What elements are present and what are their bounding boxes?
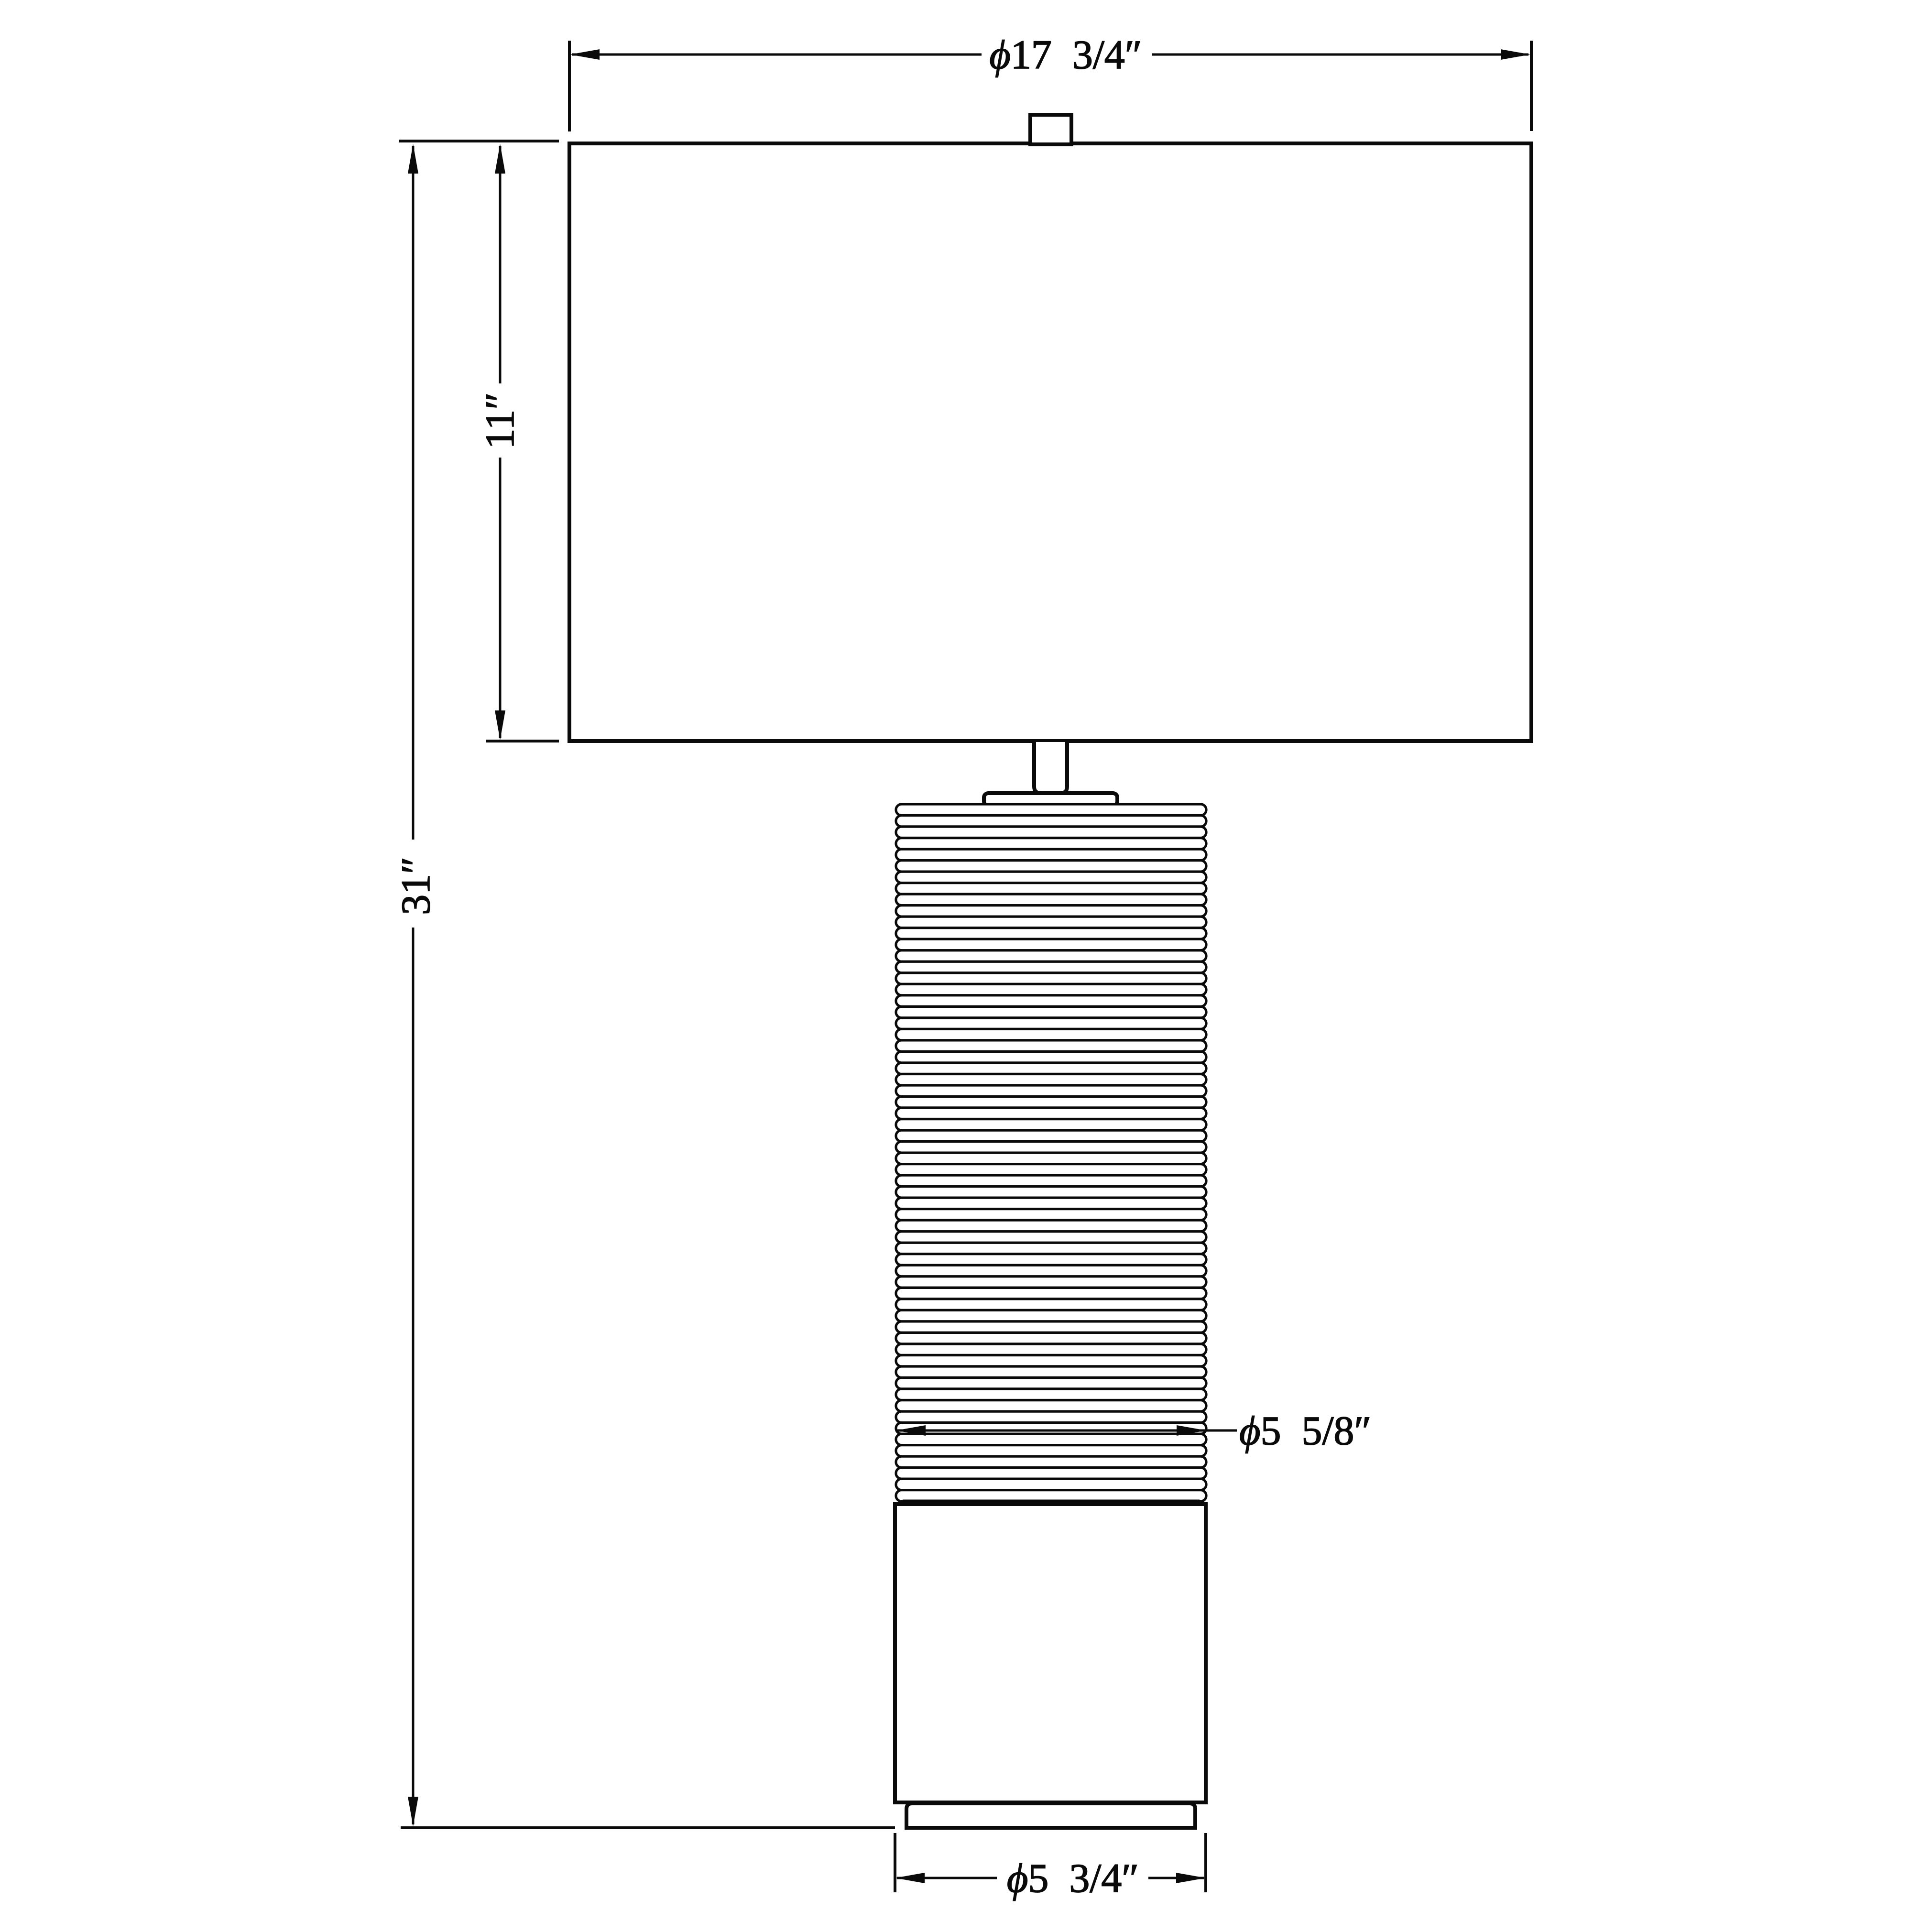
svg-text:ϕ17 3/4″: ϕ17 3/4″ [989, 32, 1142, 77]
svg-text:ϕ5 3/4″: ϕ5 3/4″ [1007, 1855, 1139, 1901]
svg-text:31″: 31″ [393, 857, 438, 915]
svg-text:ϕ5 5/8″: ϕ5 5/8″ [1239, 1408, 1371, 1453]
svg-text:11″: 11″ [477, 393, 523, 449]
